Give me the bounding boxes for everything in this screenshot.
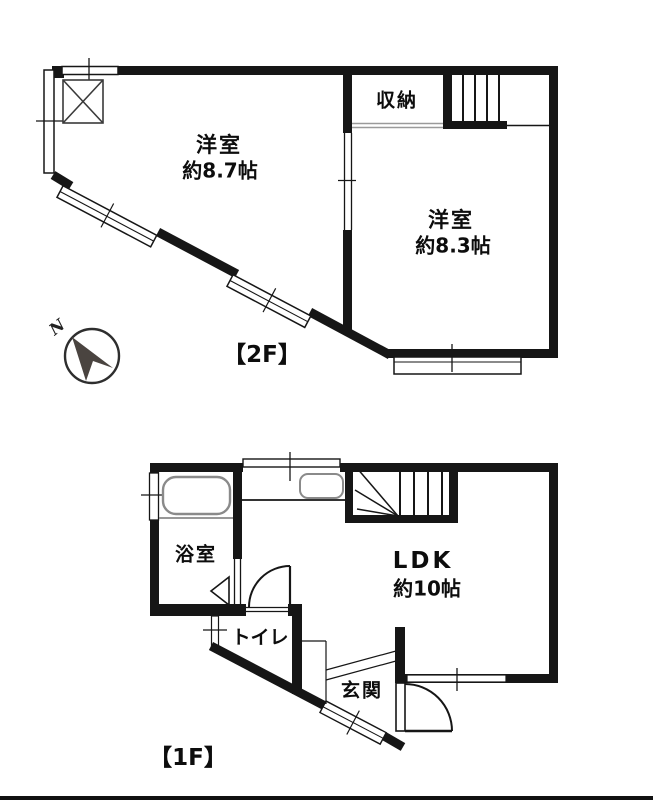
- floor-2f: [36, 58, 558, 374]
- wall-1f-top-right: [340, 463, 558, 472]
- wall-2f-partition-lower: [343, 230, 352, 332]
- shaft-x-box: [63, 80, 103, 123]
- wall-1f-genkan: [395, 627, 405, 683]
- bathtub-icon: [163, 477, 230, 514]
- kitchen-sink-icon: [300, 474, 343, 498]
- page-bottom-border: [0, 796, 653, 800]
- ldk-size-label: 約10帖: [393, 573, 461, 602]
- wall-1f-left: [150, 520, 159, 614]
- stairs-2f-icon: [443, 75, 549, 129]
- window-1f-diagonal: [317, 695, 390, 751]
- ldk-label: LDK: [393, 548, 454, 574]
- floor-2f-label: 【2F】: [223, 335, 301, 369]
- window-2f-bottom: [394, 344, 521, 374]
- toilet-label: トイレ: [231, 623, 288, 650]
- partition-opening: [338, 133, 356, 230]
- bath-label: 浴室: [175, 540, 217, 567]
- wall-2f-partition-upper: [343, 66, 352, 133]
- floor-plan-page: 洋室 約8.7帖 洋室 約8.3帖 収納 【2F】 N 浴室 LDK 約10帖 …: [0, 0, 653, 800]
- room-label-2f-east-size: 約8.3帖: [415, 230, 490, 259]
- wall-1f-bath-right: [233, 463, 242, 559]
- wall-2f-top: [116, 66, 558, 75]
- entrance-door: [396, 683, 452, 731]
- bath-folding-door-icon: [211, 577, 229, 605]
- floor-plan-drawing: [0, 0, 653, 800]
- wall-2f-right: [549, 66, 558, 358]
- toilet-door-threshold: [246, 603, 288, 617]
- wall-1f-right: [549, 463, 558, 683]
- entrance-label: 玄関: [341, 676, 383, 703]
- window-2f-top: [62, 67, 118, 75]
- compass-icon: [65, 329, 119, 383]
- wall-1f-toilet-right: [292, 604, 302, 694]
- wall-2f-diagonal: [53, 175, 390, 355]
- room-label-2f-west-size: 約8.7帖: [182, 155, 257, 184]
- window-2f-diagonal-2: [224, 268, 314, 333]
- window-1f-toilet: [212, 616, 219, 646]
- floor-1f-label: 【1F】: [149, 738, 227, 772]
- bath-door-opening: [235, 559, 241, 604]
- toilet-door-arc: [249, 566, 290, 607]
- wall-1f-top-left: [150, 463, 243, 472]
- window-1f-bath: [150, 473, 159, 520]
- window-1f-kitchen: [243, 459, 340, 467]
- window-2f-diagonal-1: [54, 179, 160, 252]
- floor-1f: [141, 452, 558, 750]
- closet-label: 収納: [376, 86, 418, 113]
- closet-sliding-door: [352, 124, 443, 128]
